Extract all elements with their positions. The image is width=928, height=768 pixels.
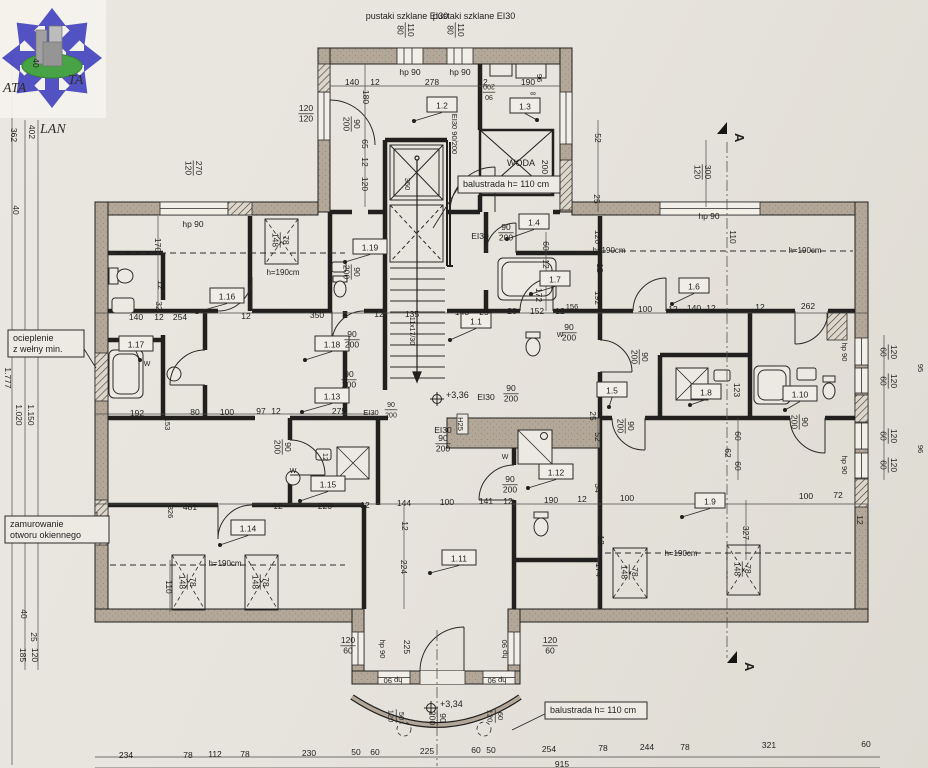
svg-text:1.9: 1.9 (704, 497, 716, 507)
svg-text:1.5: 1.5 (606, 386, 618, 396)
dim-label: 40 (19, 609, 29, 619)
svg-text:1.14: 1.14 (240, 524, 257, 534)
room-label-1.1: 1.1 (448, 313, 491, 342)
svg-text:78: 78 (240, 749, 250, 759)
dim-label: 12060 (878, 344, 898, 359)
svg-text:25: 25 (588, 411, 598, 421)
svg-text:152: 152 (530, 306, 544, 316)
dim-label: 12 (321, 453, 330, 461)
window (160, 202, 228, 215)
dim-label: 152 (530, 306, 544, 316)
svg-text:25: 25 (479, 307, 489, 317)
svg-text:120: 120 (299, 114, 313, 124)
window (508, 632, 520, 665)
svg-text:110: 110 (164, 580, 174, 594)
svg-text:1.020: 1.020 (14, 404, 24, 426)
dim-label: 12 (156, 280, 166, 290)
svg-text:200: 200 (629, 350, 639, 364)
dim-label: 12 (370, 77, 380, 87)
dim-label: 90200 (483, 82, 496, 99)
svg-text:148: 148 (619, 565, 629, 579)
dim-label: 220 (318, 501, 332, 511)
company-logo: ATA TA LAN (0, 0, 106, 137)
svg-text:otworu okiennego: otworu okiennego (10, 530, 81, 540)
dim-label: 90200 (272, 439, 292, 454)
svg-text:244: 244 (640, 742, 654, 752)
dim-label: 60 (733, 461, 743, 471)
svg-text:h=190cm: h=190cm (266, 268, 299, 277)
dim-label: 90200 (341, 116, 361, 131)
dim-label: 12 (273, 501, 283, 511)
dim-label: hp 90 (500, 640, 509, 659)
svg-text:78: 78 (183, 750, 193, 760)
dim-label: 270120 (183, 160, 203, 175)
room-label-1.12: 1.12 (526, 464, 573, 490)
svg-text:120: 120 (543, 635, 557, 645)
room-label-1.15: 1.15 (298, 476, 345, 503)
dim-label: 200 (540, 160, 550, 174)
dim-label: 12 (541, 259, 551, 269)
room-label-1.8: 1.8 (688, 384, 721, 407)
svg-text:100: 100 (638, 304, 652, 314)
window (560, 92, 572, 144)
svg-text:200: 200 (503, 485, 517, 495)
dim-label: 144 (397, 498, 411, 508)
svg-text:hp 90: hp 90 (182, 219, 204, 229)
svg-text:120: 120 (692, 165, 702, 179)
dim-label: 60 (541, 241, 551, 251)
svg-text:1.777: 1.777 (3, 367, 13, 389)
dim-label: 327 (741, 526, 751, 540)
floor-plan-sheet: ATA TA LAN balustrada h= 110 cmbalustrad… (0, 0, 928, 768)
window (855, 368, 868, 393)
svg-text:1.3: 1.3 (519, 102, 531, 112)
dim-label: EI30 90/200 (450, 114, 459, 154)
svg-text:234: 234 (119, 750, 133, 760)
svg-text:A: A (742, 662, 757, 672)
dim-label: hp 90 (840, 343, 849, 362)
dim-label: 95 (916, 364, 925, 372)
dim-label: 262 (801, 301, 815, 311)
svg-text:915: 915 (555, 759, 569, 768)
washbasin (797, 368, 816, 380)
svg-text:90: 90 (501, 222, 511, 232)
dim-label: 12 (271, 406, 281, 416)
dim-label: 25 (479, 307, 489, 317)
svg-text:190: 190 (521, 77, 535, 87)
dim-label: 143 (455, 307, 469, 317)
svg-text:h=190cm: h=190cm (208, 559, 241, 568)
svg-text:200: 200 (341, 117, 351, 131)
svg-text:140: 140 (345, 77, 359, 87)
svg-text:90: 90 (352, 119, 362, 129)
svg-text:200: 200 (436, 444, 450, 454)
dim-label: hp 90 (378, 640, 387, 659)
dim-label: W (290, 468, 297, 475)
svg-text:25: 25 (29, 632, 39, 642)
dim-label: 20 (507, 306, 517, 316)
stair-direction-arrow (413, 156, 421, 382)
dim-label: hp 90 (384, 676, 403, 685)
svg-text:200: 200 (427, 711, 437, 725)
dim-label: 192 (593, 291, 603, 305)
svg-text:1.6: 1.6 (688, 282, 700, 292)
dim-label: 362 (9, 128, 19, 142)
dim-label: 1.150 (26, 404, 36, 426)
svg-text:60: 60 (878, 431, 888, 441)
svg-text:balustrada h= 110 cm: balustrada h= 110 cm (550, 705, 636, 715)
dim-label: H25 (456, 414, 468, 434)
dim-label: 244 (640, 742, 654, 752)
svg-text:254: 254 (542, 744, 556, 754)
svg-text:hp 90: hp 90 (488, 676, 507, 685)
dim-label: h=190cm (664, 549, 697, 558)
svg-text:20: 20 (507, 306, 517, 316)
room-label-1.16: 1.16 (195, 288, 244, 314)
dim-label: 78 (598, 743, 608, 753)
svg-text:200: 200 (499, 233, 513, 243)
svg-text:192: 192 (593, 291, 603, 305)
svg-text:143: 143 (455, 307, 469, 317)
dim-label: 12 (503, 496, 513, 506)
svg-text:148: 148 (177, 575, 187, 589)
dim-label: 172 (534, 288, 544, 302)
svg-text:60: 60 (545, 646, 555, 656)
svg-text:1.13: 1.13 (324, 392, 341, 402)
note-box: balustrada h= 110 cm (512, 702, 647, 730)
dim-label: 52 (593, 133, 603, 143)
toilet (823, 376, 835, 399)
svg-text:120: 120 (485, 710, 494, 723)
note-box: ociepleniez wełny min. (8, 330, 96, 368)
svg-text:h=190cm: h=190cm (664, 549, 697, 558)
dim-label: h=190cm (788, 246, 821, 255)
dim-label: 185 (18, 648, 28, 662)
svg-text:12: 12 (360, 157, 370, 167)
dim-label: 60 (733, 431, 743, 441)
staircase (385, 140, 453, 390)
svg-text:12: 12 (154, 312, 164, 322)
svg-text:200: 200 (342, 380, 356, 390)
shower (337, 447, 369, 479)
svg-text:148: 148 (270, 233, 280, 247)
svg-text:hp 90: hp 90 (698, 211, 720, 221)
svg-text:12: 12 (271, 406, 281, 416)
room-label-1.14: 1.14 (218, 520, 265, 547)
dim-label: 60 (370, 747, 380, 757)
dim-label: 11080 (445, 22, 465, 37)
svg-text:100: 100 (799, 491, 813, 501)
svg-text:hp 90: hp 90 (840, 456, 849, 475)
room-label-1.10: 1.10 (783, 386, 817, 412)
logo-text-lan: LAN (39, 122, 66, 137)
dim-label: 25 (592, 194, 602, 204)
svg-text:110: 110 (728, 230, 738, 244)
svg-text:200: 200 (540, 160, 550, 174)
dim-label: 100 (440, 497, 454, 507)
svg-text:34: 34 (593, 483, 603, 493)
dim-label: WODA (507, 158, 535, 168)
svg-text:110: 110 (406, 23, 416, 37)
dim-label: 140 (129, 312, 143, 322)
svg-text:192: 192 (130, 408, 144, 418)
svg-text:141: 141 (479, 496, 493, 506)
dim-label: hp 90 (488, 676, 507, 685)
svg-text:90: 90 (352, 267, 362, 277)
dim-label: 123 (732, 383, 742, 397)
washbasin (112, 298, 134, 313)
svg-text:12: 12 (706, 303, 716, 313)
section-marker: A (717, 122, 747, 143)
svg-text:12: 12 (595, 263, 605, 273)
svg-text:78: 78 (188, 577, 198, 587)
svg-text:200: 200 (615, 419, 625, 433)
dim-label: 78148 (177, 574, 197, 589)
svg-text:12: 12 (668, 304, 678, 314)
svg-text:350: 350 (403, 178, 412, 191)
svg-text:12: 12 (755, 302, 765, 312)
svg-text:275: 275 (332, 406, 346, 416)
svg-text:100: 100 (620, 493, 634, 503)
dim-label: 174 (594, 563, 604, 577)
dim-label: 12 (555, 306, 565, 316)
svg-text:95: 95 (916, 364, 925, 372)
svg-text:12: 12 (400, 521, 410, 531)
dim-label: 12060 (878, 428, 898, 443)
svg-text:72: 72 (833, 490, 843, 500)
dim-label: 153 (163, 418, 172, 431)
dim-label: 78148 (270, 232, 290, 247)
svg-text:112: 112 (208, 749, 222, 759)
svg-text:278: 278 (425, 77, 439, 87)
svg-text:120: 120 (360, 177, 370, 191)
dim-label: 90200 (502, 474, 517, 494)
svg-text:50: 50 (486, 745, 496, 755)
svg-text:12: 12 (241, 311, 251, 321)
svg-text:12: 12 (156, 280, 166, 290)
svg-text:90: 90 (344, 369, 354, 379)
svg-text:hp 90: hp 90 (399, 67, 421, 77)
svg-text:52: 52 (593, 432, 603, 442)
dim-label: 481 (183, 502, 197, 512)
svg-text:225: 225 (420, 746, 434, 756)
svg-text:200: 200 (562, 333, 576, 343)
svg-text:481: 481 (183, 502, 197, 512)
dim-label: 60 (471, 745, 481, 755)
room-label-1.6: 1.6 (670, 278, 709, 306)
dim-label: 190 (544, 495, 558, 505)
toilet (333, 276, 347, 297)
svg-text:60: 60 (343, 646, 353, 656)
dim-label: 254 (173, 312, 187, 322)
glass-block-window (397, 48, 423, 64)
svg-text:153: 153 (163, 418, 172, 431)
svg-text:1.16: 1.16 (219, 292, 236, 302)
washbasin (714, 370, 730, 381)
logo-text-ta: TA (68, 73, 84, 88)
svg-text:200: 200 (504, 394, 518, 404)
svg-text:60: 60 (878, 460, 888, 470)
dim-label: 12 (596, 535, 606, 545)
svg-text:40: 40 (11, 205, 21, 215)
dim-label: 90200 (498, 222, 513, 242)
svg-text:78: 78 (630, 567, 640, 577)
svg-text:96: 96 (535, 74, 544, 82)
svg-text:321: 321 (762, 740, 776, 750)
svg-text:12: 12 (596, 535, 606, 545)
dim-label: 110 (728, 230, 738, 244)
svg-text:1.12: 1.12 (548, 468, 565, 478)
svg-text:12: 12 (503, 496, 513, 506)
svg-text:350: 350 (310, 310, 324, 320)
dim-label: h=190cm (208, 559, 241, 568)
dim-label: 350 (403, 178, 412, 191)
dim-label: 278 (425, 77, 439, 87)
svg-text:1.4: 1.4 (528, 218, 540, 228)
balcony-column (397, 722, 411, 736)
dim-label: 25 (29, 632, 39, 642)
dim-label: 192 (130, 408, 144, 418)
svg-text:60: 60 (496, 712, 505, 720)
logo-text-ata: ATA (2, 81, 27, 96)
svg-text:EI30: EI30 (471, 231, 489, 241)
svg-text:80: 80 (445, 25, 455, 35)
svg-text:WODA: WODA (507, 158, 535, 168)
svg-text:96: 96 (916, 445, 925, 453)
masonry-hatch (95, 64, 868, 545)
svg-text:1.18: 1.18 (324, 340, 341, 350)
svg-text:140: 140 (129, 312, 143, 322)
svg-text:50: 50 (351, 747, 361, 757)
dim-label: 915 (555, 759, 569, 768)
svg-text:123: 123 (732, 383, 742, 397)
dim-label: 110 (164, 580, 174, 594)
dim-label: 225 (420, 746, 434, 756)
svg-text:H25: H25 (456, 417, 465, 431)
svg-text:120: 120 (299, 103, 313, 113)
svg-text:200: 200 (341, 265, 351, 279)
dim-label: 224 (399, 560, 409, 574)
svg-text:120: 120 (183, 161, 193, 175)
dim-label: 96 (535, 74, 544, 82)
dim-label: 300120 (692, 164, 712, 179)
svg-text:78: 78 (261, 577, 271, 587)
dim-label: 120 (360, 177, 370, 191)
dim-label: 234 (119, 750, 133, 760)
dim-label: 25 (588, 411, 598, 421)
svg-text:220: 220 (318, 501, 332, 511)
dim-label: 50 (486, 745, 496, 755)
dim-label: h=190cm (266, 268, 299, 277)
dim-label: 12 (706, 303, 716, 313)
dim-label: 90200 (385, 402, 398, 419)
section-marker: A (727, 651, 757, 672)
dim-label: 11x17/30 (408, 317, 415, 345)
svg-text:120: 120 (30, 648, 40, 662)
dim-label: 140 (345, 77, 359, 87)
balcony-door-opening (420, 671, 465, 684)
dim-label: 60120 (485, 709, 504, 723)
balcony-column (477, 722, 491, 736)
dim-label: 97 (256, 406, 266, 416)
dim-label: 12 (668, 304, 678, 314)
svg-text:W: W (290, 468, 297, 475)
svg-text:W: W (502, 454, 509, 461)
svg-text:hp 90: hp 90 (378, 640, 387, 659)
glass-block-window (447, 48, 473, 64)
svg-text:hp 90: hp 90 (500, 640, 509, 659)
dim-label: 90200 (789, 414, 809, 429)
dim-label: 12 (360, 157, 370, 167)
dim-label: W (144, 361, 151, 368)
svg-text:148: 148 (732, 562, 742, 576)
dim-label: 78148 (732, 561, 752, 576)
dim-label: 12 (855, 515, 865, 525)
svg-text:90: 90 (506, 383, 516, 393)
dim-label: 100 (799, 491, 813, 501)
svg-text:1.19: 1.19 (362, 243, 379, 253)
dim-label: 78148 (619, 564, 639, 579)
svg-text:1.1: 1.1 (470, 317, 482, 327)
svg-text:144: 144 (397, 498, 411, 508)
svg-text:25: 25 (592, 194, 602, 204)
svg-text:+3,36: +3,36 (446, 390, 469, 400)
svg-text:1.10: 1.10 (792, 390, 809, 400)
svg-text:120: 120 (889, 345, 899, 359)
dim-label: 52 (593, 432, 603, 442)
dim-label: ∞ (530, 89, 536, 98)
dim-label: 78 (183, 750, 193, 760)
svg-text:262: 262 (801, 301, 815, 311)
svg-text:12: 12 (321, 453, 330, 461)
svg-text:97: 97 (256, 406, 266, 416)
room-label-1.19: 1.19 (343, 239, 387, 264)
svg-text:1.17: 1.17 (128, 340, 145, 350)
svg-text:185: 185 (18, 648, 28, 662)
svg-text:+3,34: +3,34 (440, 699, 463, 709)
svg-text:60: 60 (471, 745, 481, 755)
bathtub (109, 350, 143, 398)
window (318, 92, 330, 140)
level-mark: +3,36 (430, 390, 469, 406)
dim-label: 12 (154, 312, 164, 322)
dim-label: pustaki szklane EI30 (433, 11, 516, 21)
svg-text:90: 90 (626, 421, 636, 431)
svg-text:80: 80 (395, 25, 405, 35)
svg-text:hp 90: hp 90 (384, 676, 403, 685)
toilet (526, 332, 540, 356)
svg-text:65: 65 (360, 139, 370, 149)
dim-label: 12 (374, 309, 384, 319)
dim-label: 254 (542, 744, 556, 754)
dim-label: 78 (240, 749, 250, 759)
svg-text:90: 90 (505, 474, 515, 484)
dim-label: 321 (762, 740, 776, 750)
dim-label: 120 (30, 648, 40, 662)
svg-text:90: 90 (485, 93, 493, 100)
dim-label: 34 (593, 483, 603, 493)
svg-text:200: 200 (345, 340, 359, 350)
dim-label: 96 (916, 445, 925, 453)
svg-text:40: 40 (31, 58, 41, 68)
dim-label: 90200 (503, 383, 518, 403)
dim-label: 170 (153, 238, 163, 252)
dim-label: 32 (154, 301, 164, 311)
dim-label: EI30 (477, 392, 495, 402)
svg-text:148: 148 (250, 575, 260, 589)
svg-text:326: 326 (166, 506, 175, 519)
room-label-1.18: 1.18 (303, 336, 349, 362)
